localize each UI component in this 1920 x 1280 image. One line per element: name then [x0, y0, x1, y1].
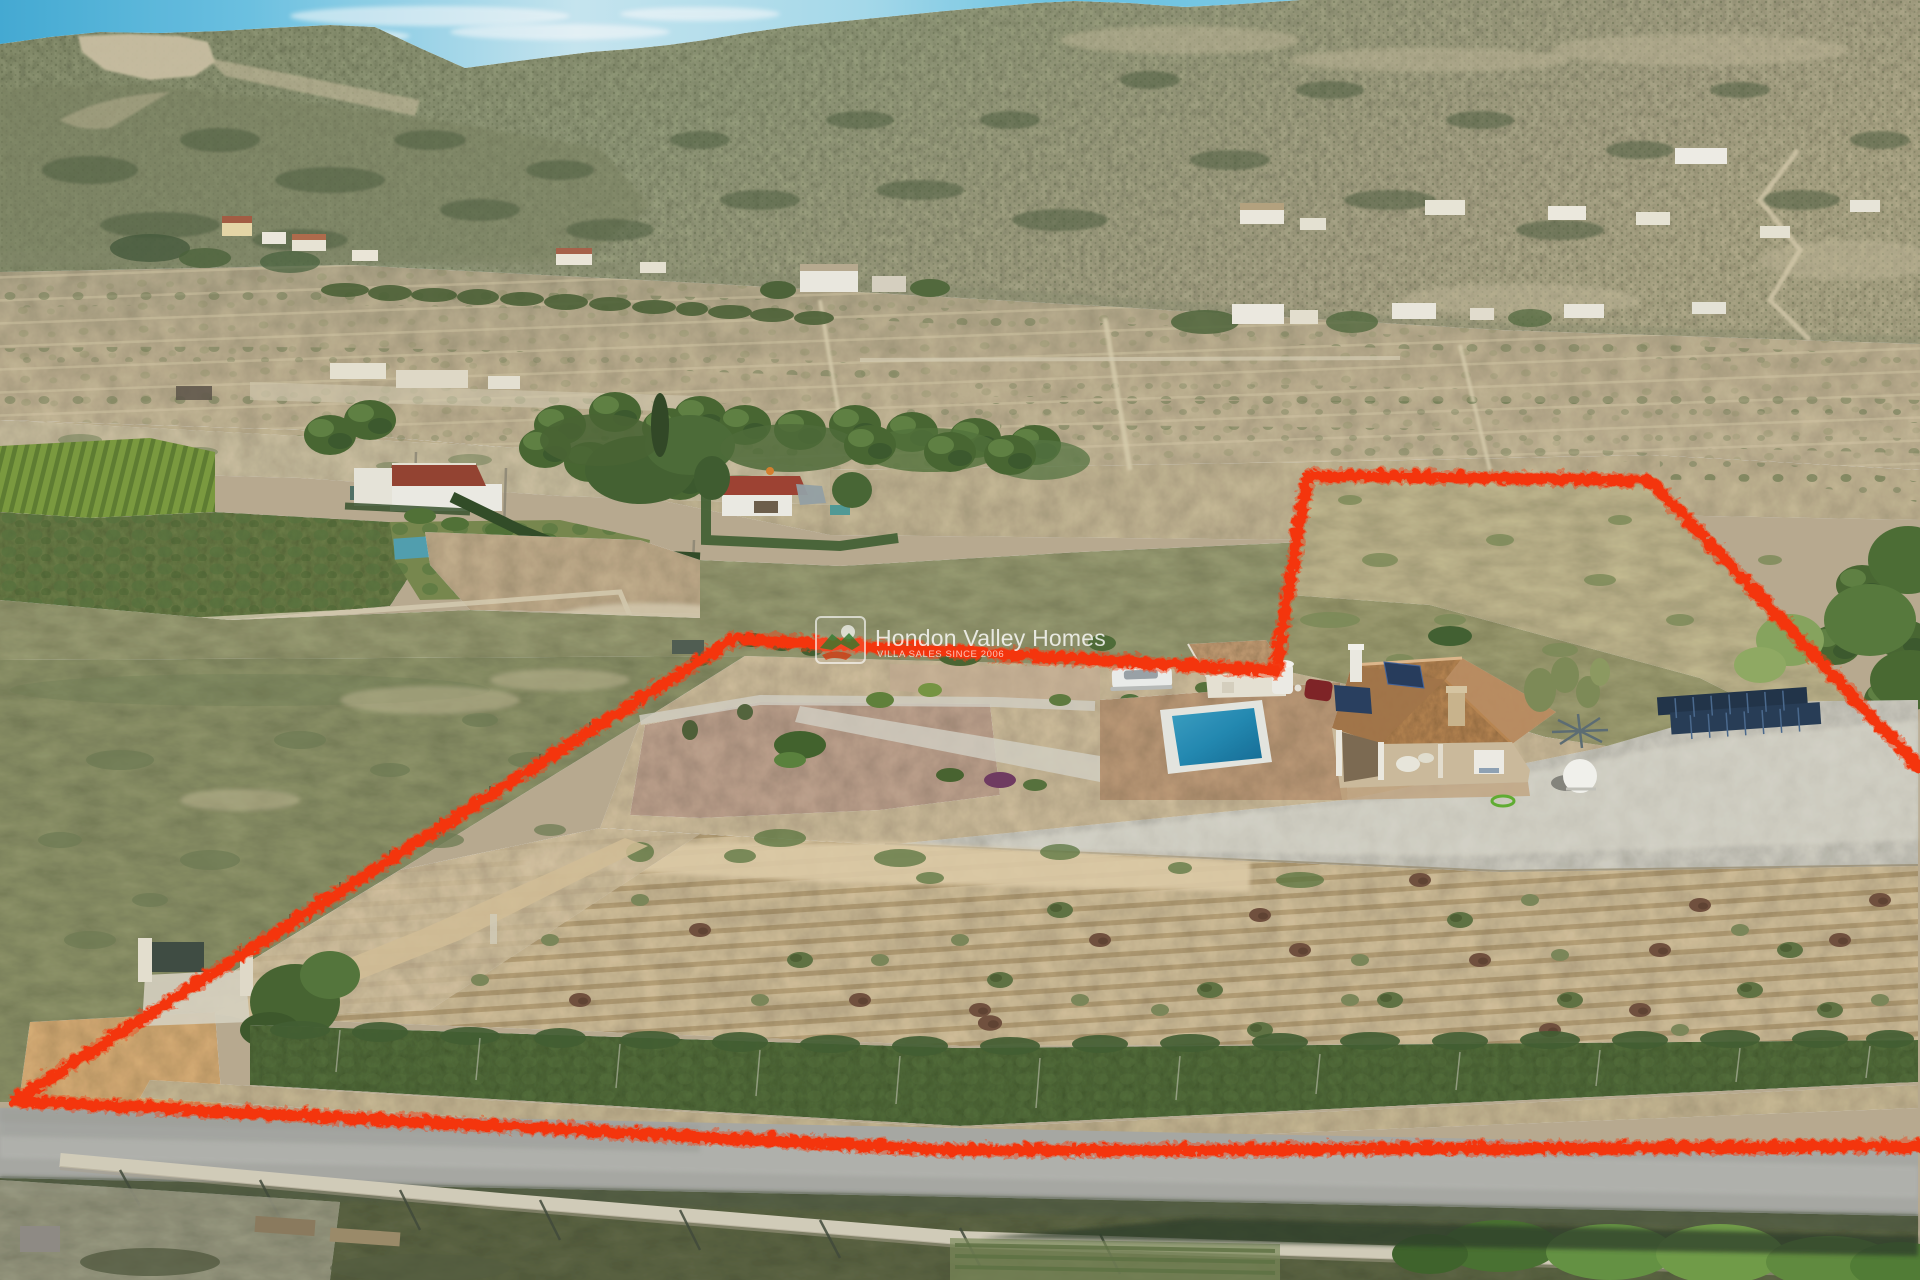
svg-text:VILLA SALES SINCE 2006: VILLA SALES SINCE 2006	[877, 649, 1004, 660]
svg-text:Hondon Valley Homes: Hondon Valley Homes	[875, 625, 1106, 651]
